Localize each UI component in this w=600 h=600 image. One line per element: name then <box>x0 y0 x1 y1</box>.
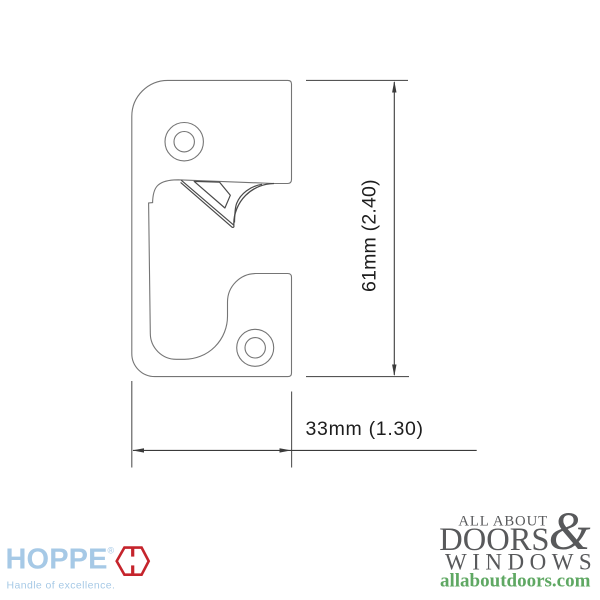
svg-text:33mm (1.30): 33mm (1.30) <box>306 418 424 440</box>
svg-text:61mm (2.40): 61mm (2.40) <box>359 179 381 292</box>
svg-text:allaboutdoors.com: allaboutdoors.com <box>440 570 591 591</box>
svg-text:®: ® <box>108 546 115 556</box>
svg-text:Handle of excellence.: Handle of excellence. <box>7 580 116 592</box>
svg-text:HOPPE: HOPPE <box>6 544 108 576</box>
